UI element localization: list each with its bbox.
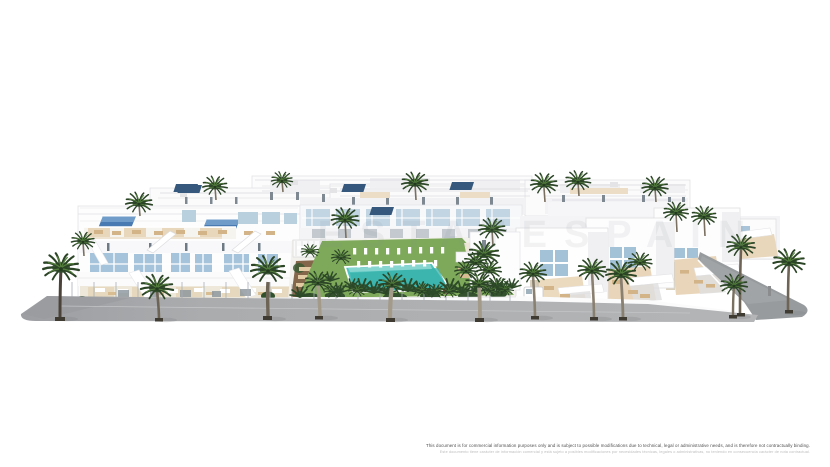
svg-text:ESTATESPAIN: ESTATESPAIN — [318, 214, 763, 256]
